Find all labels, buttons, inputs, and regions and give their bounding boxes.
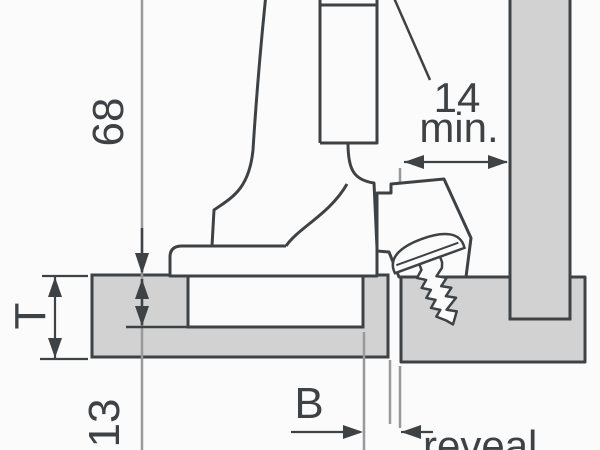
dim-label-reveal: reveal [423, 422, 537, 450]
dim-label-B: B [294, 379, 323, 428]
dim-label-T: T [6, 303, 55, 330]
dim-label-min: min. [419, 104, 498, 151]
diagram-page: 68 13 T 14 min. B reveal [0, 0, 600, 450]
hinge-diagram: 68 13 T 14 min. B reveal [0, 0, 600, 450]
hinge-cup-cavity [188, 276, 363, 327]
cabinet-side-panel [510, 0, 570, 319]
dim-label-68: 68 [84, 98, 133, 147]
dim-label-13: 13 [80, 399, 129, 448]
